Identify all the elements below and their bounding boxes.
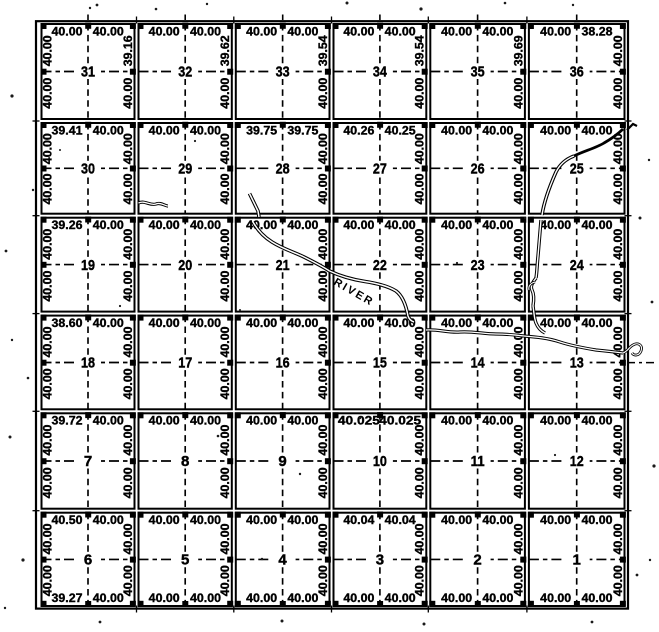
svg-text:39.26: 39.26 <box>52 218 83 232</box>
svg-text:40.04: 40.04 <box>385 513 416 527</box>
svg-text:40.00: 40.00 <box>413 228 427 259</box>
svg-text:40.00: 40.00 <box>611 35 625 66</box>
svg-text:40.00: 40.00 <box>611 368 625 399</box>
svg-text:40.00: 40.00 <box>41 173 55 204</box>
svg-text:40.00: 40.00 <box>482 218 513 232</box>
svg-text:40.00: 40.00 <box>385 316 416 330</box>
svg-text:40.00: 40.00 <box>511 467 525 498</box>
svg-text:40.00: 40.00 <box>482 123 513 137</box>
svg-text:11: 11 <box>471 453 485 470</box>
svg-text:29: 29 <box>178 161 192 178</box>
svg-text:39.72: 39.72 <box>52 414 83 428</box>
svg-text:40.00: 40.00 <box>441 414 472 428</box>
svg-text:40.00: 40.00 <box>413 326 427 357</box>
svg-text:40.00: 40.00 <box>441 316 472 330</box>
svg-text:40.00: 40.00 <box>190 591 221 605</box>
svg-text:40.00: 40.00 <box>441 591 472 605</box>
svg-text:40.00: 40.00 <box>93 123 124 137</box>
svg-text:40.00: 40.00 <box>218 228 232 259</box>
svg-text:40.00: 40.00 <box>582 218 613 232</box>
svg-text:40.00: 40.00 <box>343 316 374 330</box>
svg-text:40.00: 40.00 <box>540 24 571 38</box>
svg-text:36: 36 <box>570 64 584 81</box>
svg-text:40.00: 40.00 <box>385 24 416 38</box>
svg-text:40.00: 40.00 <box>582 316 613 330</box>
svg-text:40.00: 40.00 <box>611 565 625 596</box>
svg-text:40.00: 40.00 <box>218 270 232 301</box>
svg-text:40.00: 40.00 <box>246 24 277 38</box>
svg-text:40.00: 40.00 <box>316 368 330 399</box>
svg-text:40.00: 40.00 <box>121 173 135 204</box>
svg-text:40.00: 40.00 <box>218 467 232 498</box>
svg-text:12: 12 <box>570 453 584 470</box>
svg-text:40.00: 40.00 <box>190 24 221 38</box>
svg-text:13: 13 <box>570 355 584 372</box>
svg-text:40.00: 40.00 <box>41 424 55 455</box>
svg-text:40.00: 40.00 <box>287 316 318 330</box>
svg-text:40.00: 40.00 <box>41 228 55 259</box>
svg-text:26: 26 <box>471 161 485 178</box>
svg-text:9: 9 <box>278 453 286 470</box>
svg-text:40.00: 40.00 <box>540 316 571 330</box>
svg-text:40.00: 40.00 <box>41 523 55 554</box>
svg-text:4: 4 <box>278 552 287 569</box>
svg-text:40.00: 40.00 <box>246 218 277 232</box>
svg-text:38.60: 38.60 <box>52 316 83 330</box>
svg-text:17: 17 <box>178 355 192 372</box>
svg-text:24: 24 <box>570 257 585 274</box>
svg-text:5: 5 <box>181 552 189 569</box>
svg-text:31: 31 <box>81 64 95 81</box>
svg-text:40.00: 40.00 <box>149 316 180 330</box>
svg-text:40.00: 40.00 <box>611 77 625 108</box>
svg-text:40.00: 40.00 <box>611 173 625 204</box>
svg-text:40.00: 40.00 <box>190 123 221 137</box>
svg-text:40.00: 40.00 <box>218 77 232 108</box>
svg-text:40.00: 40.00 <box>441 218 472 232</box>
svg-text:20: 20 <box>178 257 192 274</box>
svg-text:30: 30 <box>81 161 95 178</box>
svg-text:40.00: 40.00 <box>121 270 135 301</box>
svg-text:40.00: 40.00 <box>149 591 180 605</box>
svg-text:25: 25 <box>570 161 584 178</box>
svg-text:40.00: 40.00 <box>287 24 318 38</box>
svg-text:40.00: 40.00 <box>121 424 135 455</box>
svg-text:40.00: 40.00 <box>511 424 525 455</box>
svg-text:10: 10 <box>373 453 387 470</box>
svg-text:40.00: 40.00 <box>343 591 374 605</box>
svg-text:40.00: 40.00 <box>316 228 330 259</box>
svg-text:40.00: 40.00 <box>246 414 277 428</box>
svg-text:40.00: 40.00 <box>41 133 55 164</box>
svg-text:40.00: 40.00 <box>582 414 613 428</box>
svg-text:40.00: 40.00 <box>540 414 571 428</box>
svg-text:40.00: 40.00 <box>149 218 180 232</box>
svg-text:40.00: 40.00 <box>611 228 625 259</box>
svg-text:40.00: 40.00 <box>121 228 135 259</box>
svg-text:40.00: 40.00 <box>149 24 180 38</box>
svg-text:40.00: 40.00 <box>511 523 525 554</box>
svg-text:40.00: 40.00 <box>218 424 232 455</box>
svg-text:40.00: 40.00 <box>582 591 613 605</box>
svg-text:33: 33 <box>276 64 290 81</box>
svg-text:40.00: 40.00 <box>540 591 571 605</box>
svg-text:40.00: 40.00 <box>413 467 427 498</box>
svg-text:40.00: 40.00 <box>511 77 525 108</box>
svg-text:40.00: 40.00 <box>482 316 513 330</box>
svg-text:3: 3 <box>376 552 384 569</box>
svg-text:40.00: 40.00 <box>611 424 625 455</box>
svg-text:40.25: 40.25 <box>385 123 416 137</box>
svg-text:40.50: 40.50 <box>52 513 83 527</box>
svg-text:6: 6 <box>84 552 92 569</box>
svg-text:40.00: 40.00 <box>540 218 571 232</box>
svg-text:40.00: 40.00 <box>121 467 135 498</box>
svg-text:40.00: 40.00 <box>482 24 513 38</box>
svg-text:40.00: 40.00 <box>413 173 427 204</box>
svg-text:40.00: 40.00 <box>121 326 135 357</box>
svg-text:40.00: 40.00 <box>218 523 232 554</box>
svg-text:40.00: 40.00 <box>343 24 374 38</box>
svg-text:1: 1 <box>573 552 581 569</box>
svg-text:39.41: 39.41 <box>52 123 83 137</box>
svg-text:40.00: 40.00 <box>511 133 525 164</box>
svg-text:39.75: 39.75 <box>246 123 277 137</box>
svg-text:40.00: 40.00 <box>611 270 625 301</box>
svg-text:40.00: 40.00 <box>287 414 318 428</box>
svg-text:40.00: 40.00 <box>190 316 221 330</box>
svg-text:40.00: 40.00 <box>41 467 55 498</box>
svg-text:40.00: 40.00 <box>511 270 525 301</box>
svg-text:40.00: 40.00 <box>413 523 427 554</box>
svg-text:40.00: 40.00 <box>287 513 318 527</box>
svg-text:40.00: 40.00 <box>316 133 330 164</box>
svg-text:40.00: 40.00 <box>413 368 427 399</box>
svg-text:40.00: 40.00 <box>121 523 135 554</box>
svg-text:38.28: 38.28 <box>582 24 613 38</box>
svg-text:2: 2 <box>473 552 481 569</box>
svg-text:40.00: 40.00 <box>41 368 55 399</box>
svg-text:22: 22 <box>373 257 387 274</box>
svg-text:40.00: 40.00 <box>246 591 277 605</box>
svg-text:40.00: 40.00 <box>582 513 613 527</box>
svg-text:40.00: 40.00 <box>41 35 55 66</box>
svg-text:40.00: 40.00 <box>52 24 83 38</box>
svg-text:40.00: 40.00 <box>413 424 427 455</box>
svg-text:40.00: 40.00 <box>482 414 513 428</box>
svg-text:40.025: 40.025 <box>338 414 380 428</box>
svg-text:40.00: 40.00 <box>316 523 330 554</box>
svg-text:27: 27 <box>373 161 387 178</box>
svg-text:40.00: 40.00 <box>190 218 221 232</box>
svg-text:40.00: 40.00 <box>121 368 135 399</box>
svg-text:40.00: 40.00 <box>93 218 124 232</box>
svg-text:40.00: 40.00 <box>246 513 277 527</box>
svg-text:40.00: 40.00 <box>316 424 330 455</box>
svg-text:18: 18 <box>81 355 95 372</box>
svg-text:39.54: 39.54 <box>413 35 427 66</box>
svg-text:32: 32 <box>178 64 192 81</box>
svg-text:40.00: 40.00 <box>218 173 232 204</box>
svg-text:40.00: 40.00 <box>149 513 180 527</box>
svg-text:40.00: 40.00 <box>611 467 625 498</box>
svg-text:40.00: 40.00 <box>41 326 55 357</box>
svg-text:40.00: 40.00 <box>582 123 613 137</box>
svg-text:40.00: 40.00 <box>482 513 513 527</box>
svg-text:40.00: 40.00 <box>611 523 625 554</box>
svg-text:40.00: 40.00 <box>441 123 472 137</box>
svg-text:40.00: 40.00 <box>413 270 427 301</box>
svg-text:23: 23 <box>471 257 485 274</box>
svg-text:40.00: 40.00 <box>218 368 232 399</box>
svg-text:40.00: 40.00 <box>511 326 525 357</box>
svg-text:40.00: 40.00 <box>316 270 330 301</box>
svg-text:40.00: 40.00 <box>316 467 330 498</box>
svg-text:40.00: 40.00 <box>441 24 472 38</box>
svg-text:8: 8 <box>181 453 189 470</box>
svg-text:40.26: 40.26 <box>343 123 374 137</box>
svg-text:40.00: 40.00 <box>316 77 330 108</box>
svg-text:40.00: 40.00 <box>316 173 330 204</box>
svg-text:34: 34 <box>373 64 388 81</box>
svg-text:40.04: 40.04 <box>343 513 374 527</box>
svg-text:40.00: 40.00 <box>482 591 513 605</box>
svg-text:40.00: 40.00 <box>121 133 135 164</box>
svg-text:7: 7 <box>84 453 92 470</box>
svg-text:40.00: 40.00 <box>385 218 416 232</box>
svg-text:40.00: 40.00 <box>246 316 277 330</box>
svg-text:40.00: 40.00 <box>93 513 124 527</box>
svg-text:40.00: 40.00 <box>93 591 124 605</box>
svg-text:14: 14 <box>471 355 486 372</box>
svg-text:40.00: 40.00 <box>93 24 124 38</box>
svg-text:40.00: 40.00 <box>41 77 55 108</box>
svg-text:40.00: 40.00 <box>190 513 221 527</box>
svg-text:15: 15 <box>373 355 387 372</box>
svg-text:40.00: 40.00 <box>287 218 318 232</box>
svg-text:39.75: 39.75 <box>287 123 318 137</box>
svg-text:39.27: 39.27 <box>52 591 83 605</box>
svg-text:40.00: 40.00 <box>287 591 318 605</box>
svg-text:28: 28 <box>276 161 290 178</box>
svg-text:40.00: 40.00 <box>385 591 416 605</box>
svg-text:40.00: 40.00 <box>149 414 180 428</box>
svg-text:40.00: 40.00 <box>511 368 525 399</box>
svg-text:39.54: 39.54 <box>316 35 330 66</box>
svg-text:39.62: 39.62 <box>218 35 232 66</box>
svg-text:40.00: 40.00 <box>93 414 124 428</box>
svg-text:40.00: 40.00 <box>413 133 427 164</box>
svg-text:40.00: 40.00 <box>93 316 124 330</box>
svg-text:39.69: 39.69 <box>511 35 525 66</box>
svg-text:40.00: 40.00 <box>511 228 525 259</box>
svg-text:40.00: 40.00 <box>218 133 232 164</box>
svg-text:40.00: 40.00 <box>121 77 135 108</box>
svg-text:40.00: 40.00 <box>316 326 330 357</box>
svg-text:21: 21 <box>276 257 290 274</box>
svg-text:40.00: 40.00 <box>149 123 180 137</box>
svg-text:19: 19 <box>81 257 95 274</box>
svg-text:35: 35 <box>471 64 485 81</box>
svg-text:39.16: 39.16 <box>121 35 135 66</box>
svg-text:40.00: 40.00 <box>190 414 221 428</box>
svg-text:40.00: 40.00 <box>41 270 55 301</box>
svg-text:40.00: 40.00 <box>343 218 374 232</box>
svg-text:40.00: 40.00 <box>441 513 472 527</box>
svg-text:40.00: 40.00 <box>540 123 571 137</box>
svg-text:40.00: 40.00 <box>511 173 525 204</box>
svg-text:16: 16 <box>276 355 290 372</box>
svg-text:40.00: 40.00 <box>540 513 571 527</box>
svg-text:40.00: 40.00 <box>413 77 427 108</box>
svg-text:40.00: 40.00 <box>218 326 232 357</box>
